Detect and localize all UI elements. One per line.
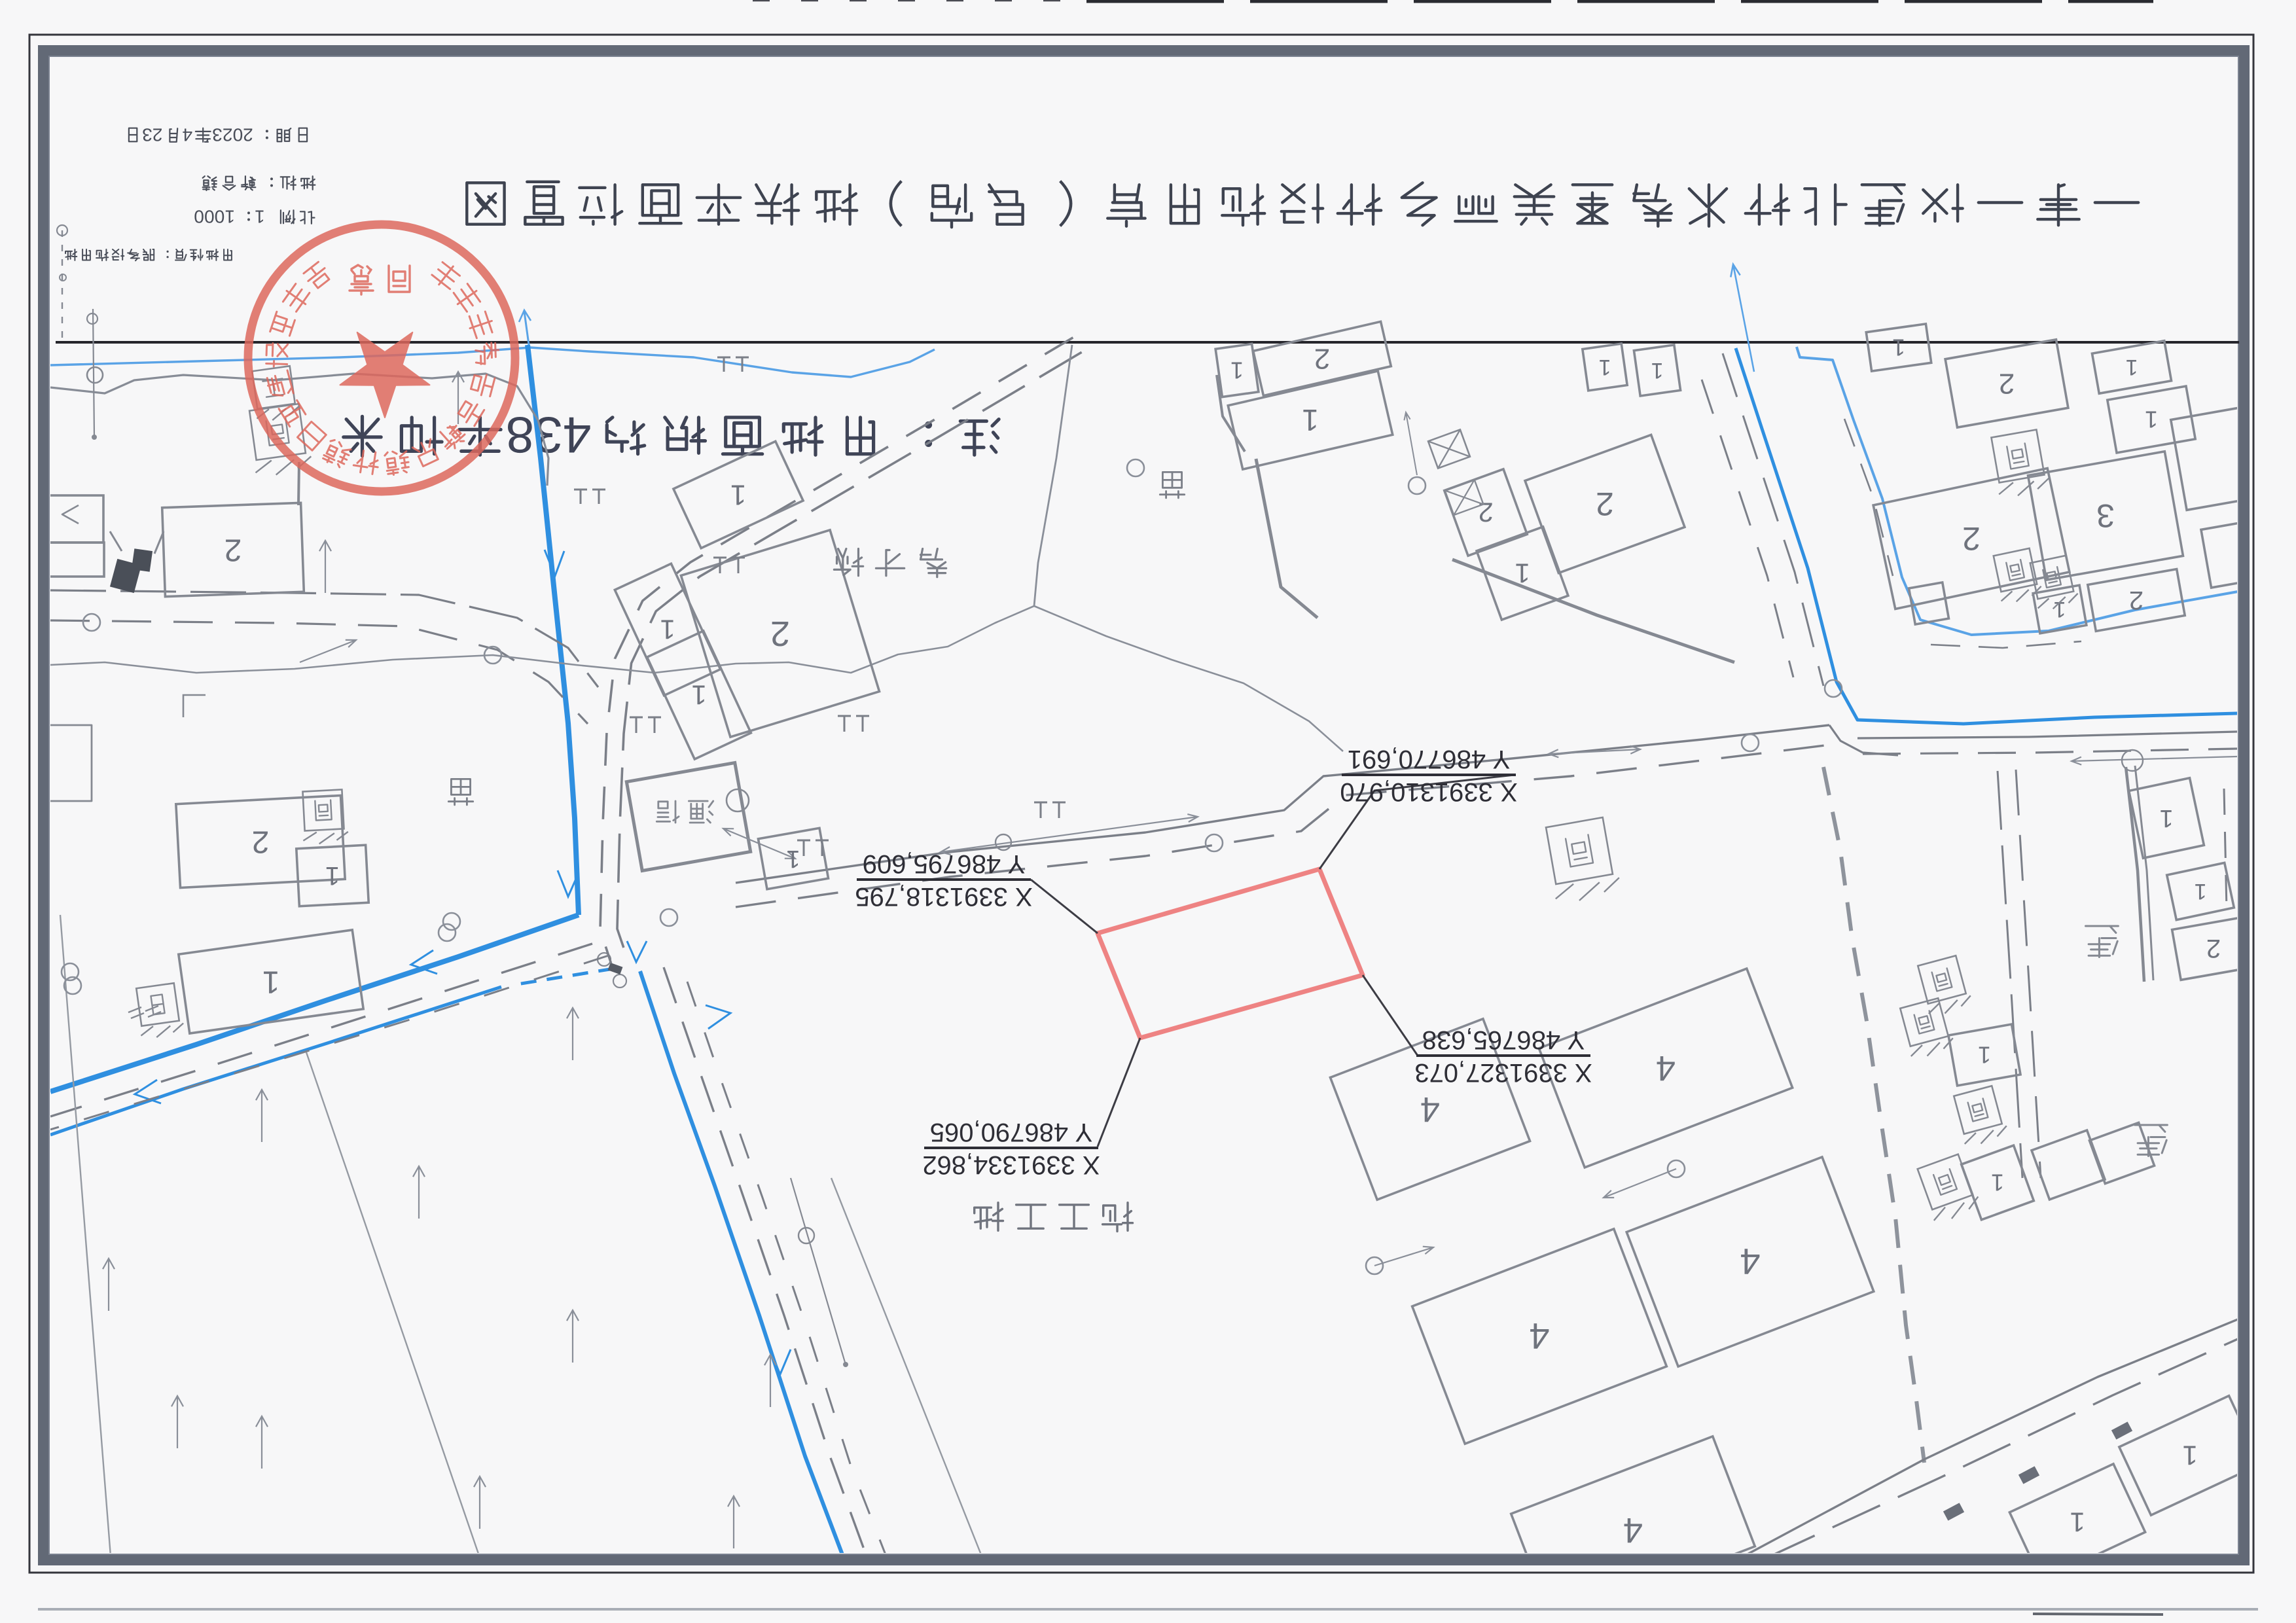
svg-text:1: 1 — [1978, 1042, 1991, 1069]
svg-text:X 3391334,862: X 3391334,862 — [922, 1150, 1100, 1179]
svg-text:1: 1 — [691, 680, 706, 711]
svg-text:2: 2 — [2206, 934, 2221, 963]
svg-text:Y 486765,638: Y 486765,638 — [1422, 1026, 1585, 1054]
svg-text:1: 1 — [1991, 1169, 2004, 1196]
svg-text:4: 4 — [1529, 1316, 1549, 1357]
svg-text:2: 2 — [1478, 497, 1493, 528]
svg-text:1: 1 — [255, 207, 265, 227]
svg-text:2: 2 — [1314, 343, 1330, 375]
svg-text:1: 1 — [1230, 357, 1244, 384]
svg-text:X 3391318,795: X 3391318,795 — [855, 882, 1032, 911]
svg-text:1: 1 — [660, 615, 675, 645]
svg-text:1: 1 — [2195, 879, 2207, 904]
svg-text:1: 1 — [325, 861, 340, 890]
svg-text:0: 0 — [204, 207, 215, 227]
svg-text:1: 1 — [224, 207, 235, 227]
svg-text:2: 2 — [252, 825, 270, 859]
svg-text:1: 1 — [1599, 355, 1611, 380]
svg-text:4: 4 — [563, 406, 591, 464]
svg-text:4: 4 — [1623, 1510, 1643, 1550]
svg-text:4: 4 — [1656, 1048, 1676, 1088]
svg-text:Y 486770,691: Y 486770,691 — [1348, 745, 1510, 774]
svg-text:2: 2 — [1596, 486, 1614, 522]
svg-text:X 3391310,970: X 3391310,970 — [1340, 777, 1517, 806]
svg-text:1: 1 — [1515, 558, 1530, 589]
svg-text:2: 2 — [243, 125, 253, 145]
svg-text:1: 1 — [1892, 334, 1905, 361]
svg-text:3: 3 — [2096, 497, 2115, 534]
svg-text:2: 2 — [770, 614, 790, 653]
svg-text:0: 0 — [194, 207, 204, 227]
svg-text:1: 1 — [2159, 804, 2173, 832]
svg-text:4: 4 — [183, 125, 193, 145]
svg-text:1: 1 — [730, 479, 746, 511]
svg-text:4: 4 — [1420, 1090, 1440, 1129]
svg-text:8: 8 — [506, 406, 534, 464]
svg-text:3: 3 — [142, 125, 152, 145]
svg-text:2: 2 — [223, 125, 233, 145]
svg-text:X 3391327,073: X 3391327,073 — [1414, 1058, 1592, 1087]
svg-text:0: 0 — [215, 207, 225, 227]
svg-text:1: 1 — [2054, 597, 2066, 622]
svg-text:2: 2 — [1999, 368, 2015, 400]
svg-text:2: 2 — [1962, 520, 1981, 557]
svg-text:1: 1 — [262, 965, 280, 999]
svg-text:2: 2 — [2129, 586, 2144, 615]
svg-text:1: 1 — [2145, 406, 2158, 433]
svg-text:1: 1 — [786, 845, 800, 872]
svg-text:4: 4 — [1740, 1241, 1760, 1283]
svg-text:1: 1 — [2070, 1507, 2085, 1538]
svg-text:1: 1 — [1651, 358, 1664, 383]
svg-text:1: 1 — [2126, 355, 2138, 380]
svg-text:1: 1 — [2182, 1440, 2197, 1471]
svg-text:2: 2 — [224, 533, 242, 567]
svg-text:2: 2 — [152, 125, 163, 145]
svg-text:Y 486795,609: Y 486795,609 — [863, 849, 1025, 878]
svg-text:3: 3 — [212, 125, 223, 145]
svg-text:1: 1 — [1302, 403, 1319, 437]
svg-text:Y 486790,065: Y 486790,065 — [930, 1118, 1092, 1147]
svg-text:0: 0 — [233, 125, 243, 145]
